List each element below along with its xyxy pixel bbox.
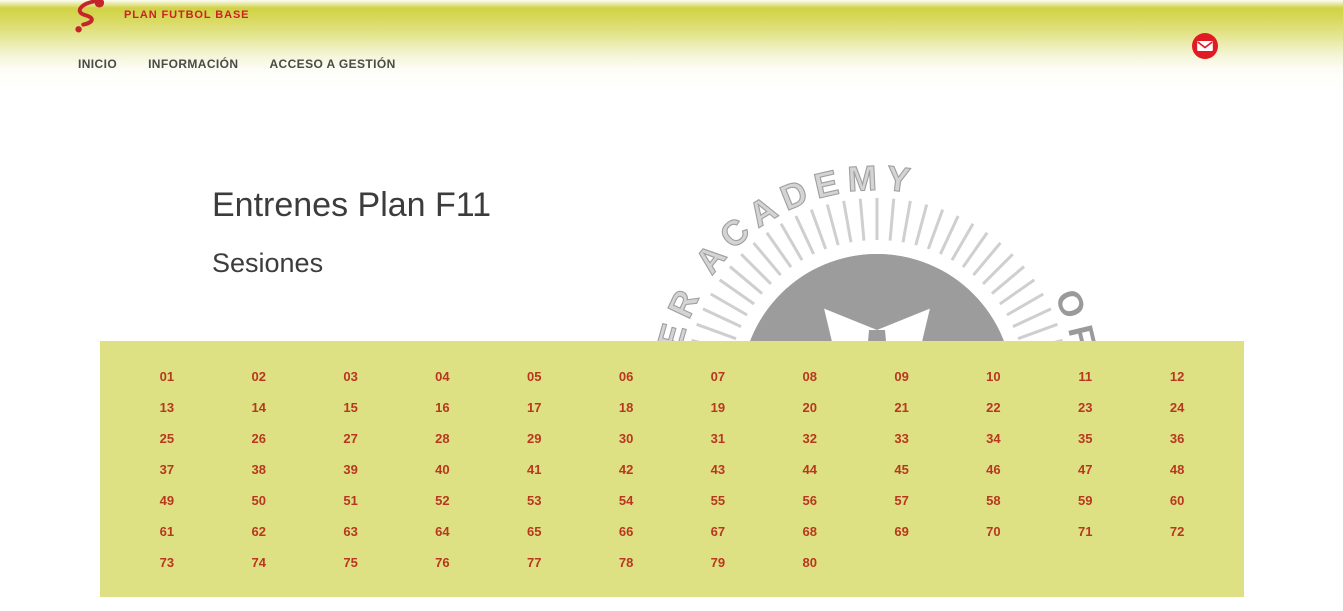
session-link[interactable]: 30 — [580, 423, 672, 454]
session-link[interactable]: 79 — [672, 547, 764, 578]
nav-item-informacion[interactable]: INFORMACIÓN — [148, 57, 238, 71]
session-link[interactable]: 35 — [1039, 423, 1131, 454]
session-link[interactable]: 32 — [764, 423, 856, 454]
session-link[interactable]: 72 — [1131, 516, 1223, 547]
session-link[interactable]: 55 — [672, 485, 764, 516]
session-link[interactable]: 74 — [213, 547, 305, 578]
session-link[interactable]: 06 — [580, 361, 672, 392]
session-link[interactable]: 47 — [1039, 454, 1131, 485]
session-link[interactable]: 28 — [397, 423, 489, 454]
session-link[interactable]: 60 — [1131, 485, 1223, 516]
session-link[interactable]: 25 — [121, 423, 213, 454]
brand-logo-icon[interactable] — [66, 0, 111, 34]
session-link[interactable]: 18 — [580, 392, 672, 423]
session-link[interactable]: 59 — [1039, 485, 1131, 516]
session-link[interactable]: 08 — [764, 361, 856, 392]
mail-envelope-icon[interactable] — [1192, 33, 1218, 59]
session-link[interactable]: 54 — [580, 485, 672, 516]
session-link[interactable]: 19 — [672, 392, 764, 423]
session-link[interactable]: 38 — [213, 454, 305, 485]
session-link[interactable]: 39 — [305, 454, 397, 485]
session-link[interactable]: 05 — [488, 361, 580, 392]
session-link[interactable]: 45 — [856, 454, 948, 485]
session-link[interactable]: 01 — [121, 361, 213, 392]
session-link[interactable]: 15 — [305, 392, 397, 423]
session-link[interactable]: 29 — [488, 423, 580, 454]
session-link[interactable]: 36 — [1131, 423, 1223, 454]
page-subtitle: Sesiones — [212, 248, 323, 279]
session-link[interactable]: 42 — [580, 454, 672, 485]
session-link[interactable]: 09 — [856, 361, 948, 392]
sessions-panel: 0102030405060708091011121314151617181920… — [100, 341, 1244, 597]
session-link[interactable]: 57 — [856, 485, 948, 516]
session-link[interactable]: 61 — [121, 516, 213, 547]
session-link[interactable]: 64 — [397, 516, 489, 547]
session-link[interactable]: 80 — [764, 547, 856, 578]
session-link[interactable]: 62 — [213, 516, 305, 547]
session-link[interactable]: 53 — [488, 485, 580, 516]
main-nav: INICIO INFORMACIÓN ACCESO A GESTIÓN — [78, 57, 396, 71]
session-link[interactable]: 13 — [121, 392, 213, 423]
session-link[interactable]: 69 — [856, 516, 948, 547]
session-link[interactable]: 52 — [397, 485, 489, 516]
brand-name: PLAN FUTBOL BASE — [124, 9, 249, 21]
session-link[interactable]: 21 — [856, 392, 948, 423]
session-link[interactable]: 70 — [948, 516, 1040, 547]
session-link[interactable]: 16 — [397, 392, 489, 423]
session-link[interactable]: 11 — [1039, 361, 1131, 392]
session-link[interactable]: 03 — [305, 361, 397, 392]
session-link[interactable]: 37 — [121, 454, 213, 485]
session-link[interactable]: 78 — [580, 547, 672, 578]
session-link[interactable]: 31 — [672, 423, 764, 454]
sessions-grid: 0102030405060708091011121314151617181920… — [100, 341, 1244, 578]
session-link[interactable]: 68 — [764, 516, 856, 547]
session-link[interactable]: 34 — [948, 423, 1040, 454]
session-link[interactable]: 02 — [213, 361, 305, 392]
session-link[interactable]: 04 — [397, 361, 489, 392]
session-link[interactable]: 46 — [948, 454, 1040, 485]
session-link[interactable]: 33 — [856, 423, 948, 454]
session-link[interactable]: 76 — [397, 547, 489, 578]
session-link[interactable]: 07 — [672, 361, 764, 392]
session-link[interactable]: 50 — [213, 485, 305, 516]
session-link[interactable]: 73 — [121, 547, 213, 578]
session-link[interactable]: 26 — [213, 423, 305, 454]
session-link[interactable]: 51 — [305, 485, 397, 516]
nav-item-acceso-gestion[interactable]: ACCESO A GESTIÓN — [269, 57, 395, 71]
session-link[interactable]: 24 — [1131, 392, 1223, 423]
session-link[interactable]: 63 — [305, 516, 397, 547]
session-link[interactable]: 77 — [488, 547, 580, 578]
session-link[interactable]: 40 — [397, 454, 489, 485]
session-link[interactable]: 43 — [672, 454, 764, 485]
header: PLAN FUTBOL BASE INICIO INFORMACIÓN ACCE… — [0, 0, 1343, 90]
session-link[interactable]: 17 — [488, 392, 580, 423]
session-link[interactable]: 71 — [1039, 516, 1131, 547]
page-title: Entrenes Plan F11 — [212, 186, 491, 225]
session-link[interactable]: 27 — [305, 423, 397, 454]
session-link[interactable]: 10 — [948, 361, 1040, 392]
session-link[interactable]: 20 — [764, 392, 856, 423]
page: PLAN FUTBOL BASE INICIO INFORMACIÓN ACCE… — [0, 0, 1343, 611]
session-link[interactable]: 49 — [121, 485, 213, 516]
session-link[interactable]: 48 — [1131, 454, 1223, 485]
nav-item-inicio[interactable]: INICIO — [78, 57, 117, 71]
session-link[interactable]: 75 — [305, 547, 397, 578]
session-link[interactable]: 41 — [488, 454, 580, 485]
session-link[interactable]: 56 — [764, 485, 856, 516]
session-link[interactable]: 12 — [1131, 361, 1223, 392]
session-link[interactable]: 65 — [488, 516, 580, 547]
session-link[interactable]: 66 — [580, 516, 672, 547]
session-link[interactable]: 23 — [1039, 392, 1131, 423]
session-link[interactable]: 67 — [672, 516, 764, 547]
session-link[interactable]: 58 — [948, 485, 1040, 516]
session-link[interactable]: 22 — [948, 392, 1040, 423]
session-link[interactable]: 44 — [764, 454, 856, 485]
session-link[interactable]: 14 — [213, 392, 305, 423]
